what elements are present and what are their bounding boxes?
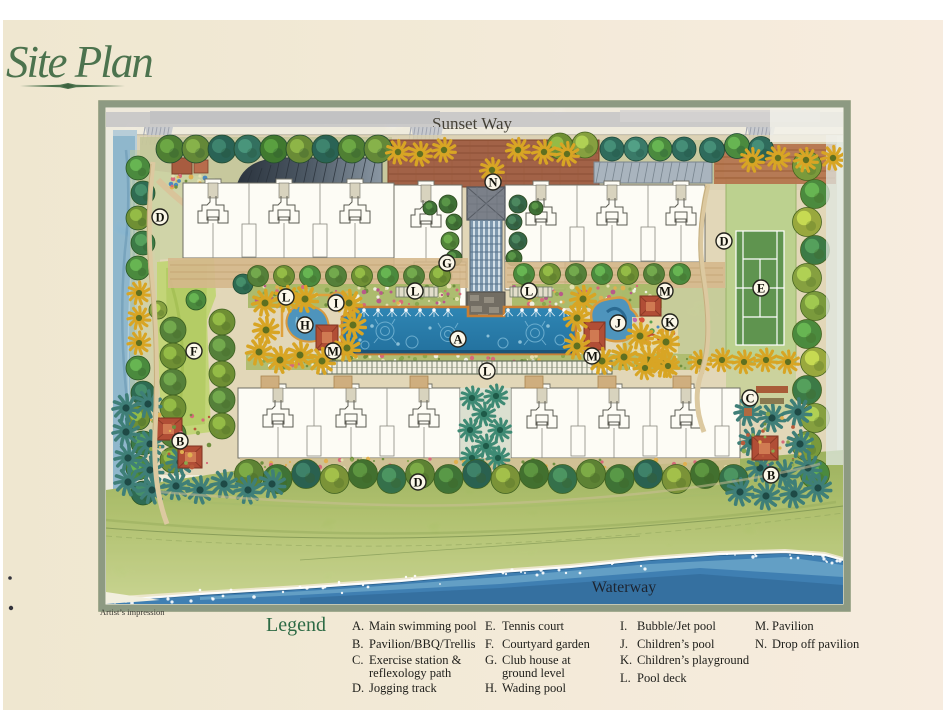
svg-text:E.: E.	[485, 619, 496, 633]
svg-text:K: K	[665, 315, 675, 329]
svg-text:D: D	[155, 210, 164, 224]
svg-text:L.: L.	[620, 671, 631, 685]
svg-text:J.: J.	[620, 637, 628, 651]
svg-text:G: G	[442, 256, 452, 270]
svg-text:Site Plan: Site Plan	[6, 37, 152, 87]
svg-text:Artist’s impression: Artist’s impression	[100, 607, 165, 617]
svg-text:Children’s playground: Children’s playground	[637, 653, 750, 667]
svg-text:reflexology path: reflexology path	[369, 666, 452, 680]
svg-text:Children’s pool: Children’s pool	[637, 637, 715, 651]
svg-text:Exercise station &: Exercise station &	[369, 653, 462, 667]
svg-text:C.: C.	[352, 653, 363, 667]
svg-text:M: M	[659, 284, 671, 298]
svg-text:Pavilion: Pavilion	[772, 619, 814, 633]
svg-text:Pavilion/BBQ/Trellis: Pavilion/BBQ/Trellis	[369, 637, 476, 651]
svg-text:ground level: ground level	[502, 666, 565, 680]
svg-text:F: F	[190, 344, 198, 358]
svg-text:Club house at: Club house at	[502, 653, 571, 667]
svg-text:D: D	[719, 234, 728, 248]
svg-text:Courtyard garden: Courtyard garden	[502, 637, 591, 651]
svg-text:B: B	[176, 434, 184, 448]
svg-text:M.: M.	[755, 619, 769, 633]
svg-text:N: N	[488, 175, 497, 189]
svg-text:G.: G.	[485, 653, 497, 667]
svg-text:Waterway: Waterway	[592, 579, 656, 596]
svg-text:L: L	[525, 284, 533, 298]
svg-text:L: L	[483, 364, 491, 378]
svg-text:B: B	[767, 468, 775, 482]
svg-text:H.: H.	[485, 681, 497, 695]
svg-text:Wading pool: Wading pool	[502, 681, 566, 695]
svg-text:K.: K.	[620, 653, 632, 667]
svg-text:L: L	[282, 290, 290, 304]
svg-text:Main swimming pool: Main swimming pool	[369, 619, 477, 633]
svg-text:H: H	[300, 318, 310, 332]
svg-text:J: J	[615, 316, 621, 330]
svg-text:B.: B.	[352, 637, 363, 651]
svg-text:N.: N.	[755, 637, 767, 651]
svg-text:Legend: Legend	[266, 614, 326, 636]
svg-text:L: L	[411, 284, 419, 298]
svg-text:I.: I.	[620, 619, 627, 633]
svg-text:C: C	[745, 391, 754, 405]
svg-text:E: E	[757, 281, 765, 295]
svg-text:A: A	[453, 332, 462, 346]
svg-text:D.: D.	[352, 681, 364, 695]
svg-text:M: M	[586, 349, 598, 363]
svg-text:I: I	[334, 296, 339, 310]
svg-text:Tennis court: Tennis court	[502, 619, 564, 633]
svg-text:Bubble/Jet pool: Bubble/Jet pool	[637, 619, 716, 633]
svg-text:M: M	[327, 344, 339, 358]
svg-text:F.: F.	[485, 637, 494, 651]
svg-text:D: D	[413, 475, 422, 489]
svg-text:A.: A.	[352, 619, 364, 633]
svg-text:Pool deck: Pool deck	[637, 671, 687, 685]
svg-text:Drop off pavilion: Drop off pavilion	[772, 637, 860, 651]
svg-text:Jogging track: Jogging track	[369, 681, 437, 695]
